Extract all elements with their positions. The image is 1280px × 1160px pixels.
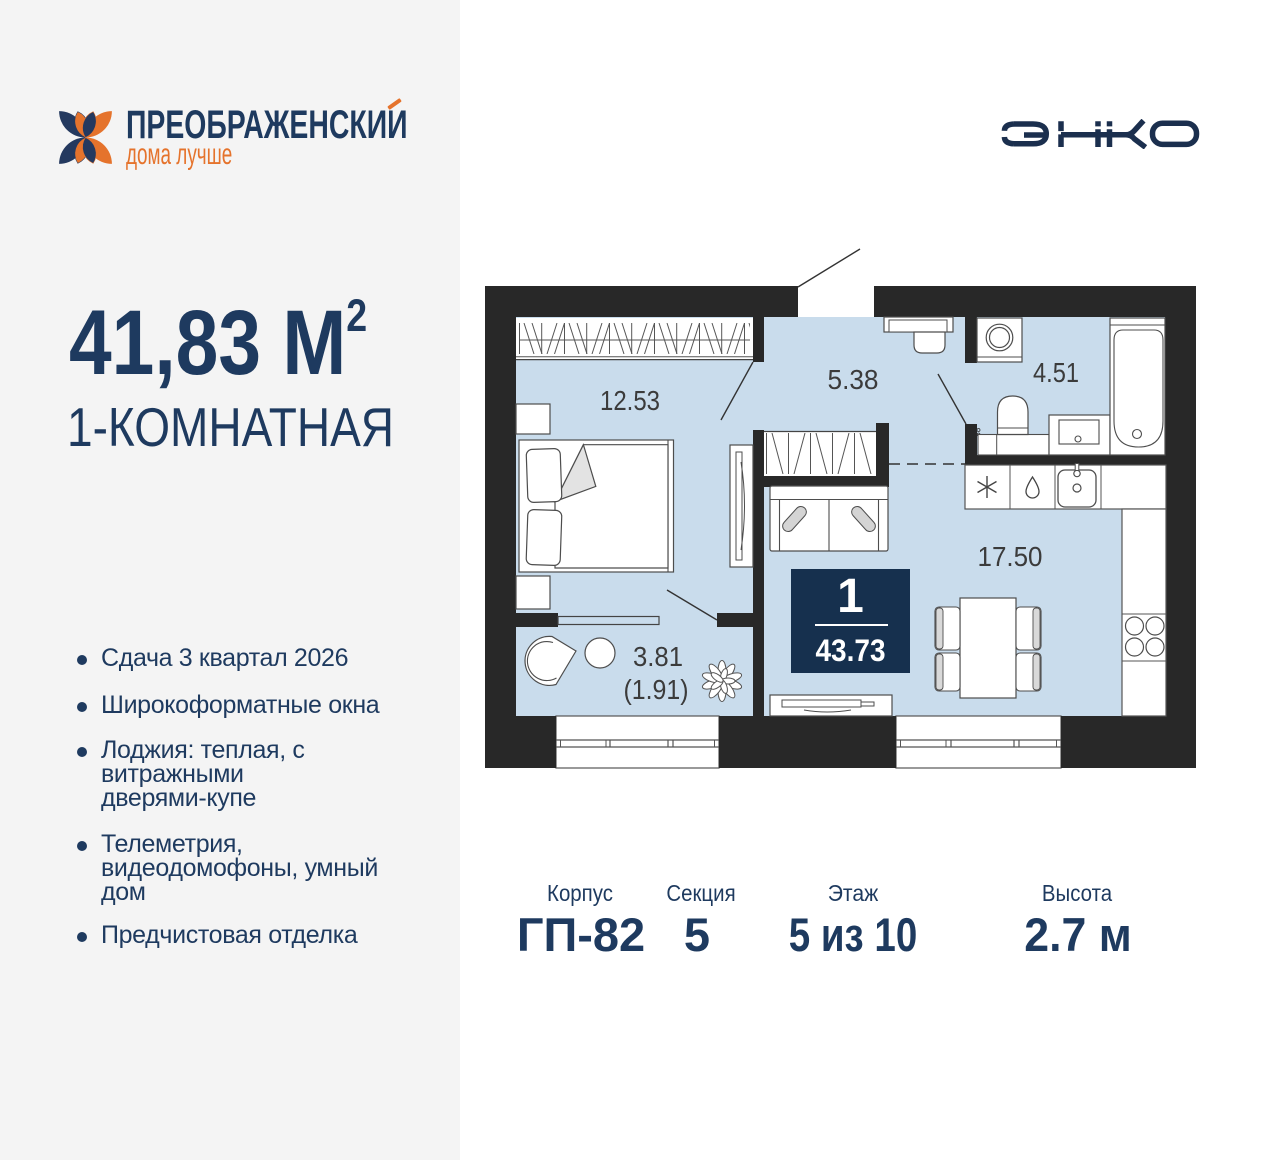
svg-text:5.38: 5.38 [828,364,879,395]
svg-text:17.50: 17.50 [978,541,1043,572]
svg-text:(1.91): (1.91) [624,674,689,705]
svg-text:3.81: 3.81 [633,641,683,672]
svg-text:43.73: 43.73 [816,632,886,668]
svg-text:12.53: 12.53 [600,385,660,416]
svg-text:4.51: 4.51 [1033,357,1079,388]
svg-text:1: 1 [837,570,864,623]
